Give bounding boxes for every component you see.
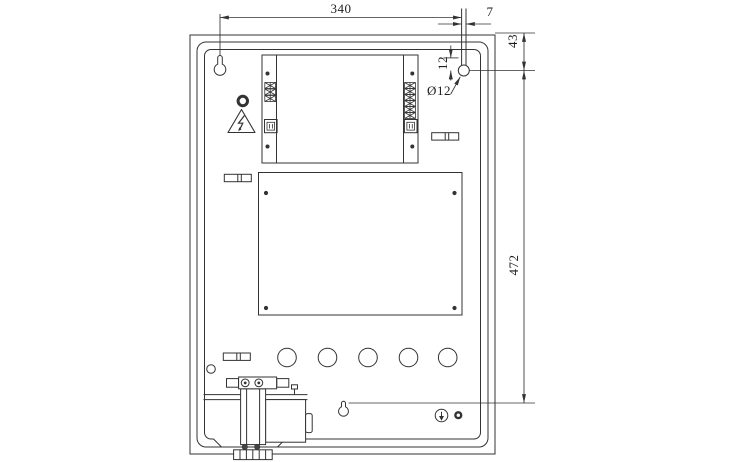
terminal-panel bbox=[262, 55, 418, 163]
dim-label-472: 472 bbox=[506, 255, 522, 276]
drawing-stage: 340 7 43 12 Ø12 472 bbox=[0, 0, 750, 462]
knockout-slot-right bbox=[432, 133, 459, 140]
terminal-block-left bbox=[265, 83, 278, 133]
dim-label-12: 12 bbox=[435, 56, 451, 70]
knockout-slot-bottom-left bbox=[223, 353, 250, 360]
led-hole bbox=[238, 96, 247, 105]
dim-label-7: 7 bbox=[487, 4, 494, 20]
dim-label-340: 340 bbox=[331, 1, 352, 17]
knockout-slot-mid-left bbox=[224, 174, 251, 181]
technical-drawing-canvas bbox=[0, 0, 750, 462]
dim-label-dia12: Ø12 bbox=[427, 83, 451, 99]
dim-label-43: 43 bbox=[505, 34, 521, 48]
mounting-keyhole-top-left bbox=[214, 55, 226, 75]
ground-screw-icon bbox=[435, 409, 448, 422]
mounting-keyhole-bottom bbox=[339, 401, 349, 416]
leader-dia12 bbox=[451, 77, 461, 95]
rivet-hole bbox=[455, 412, 461, 418]
warning-triangle-icon bbox=[228, 110, 255, 133]
terminal-block-right bbox=[404, 83, 417, 133]
mounting-plate bbox=[259, 173, 463, 316]
